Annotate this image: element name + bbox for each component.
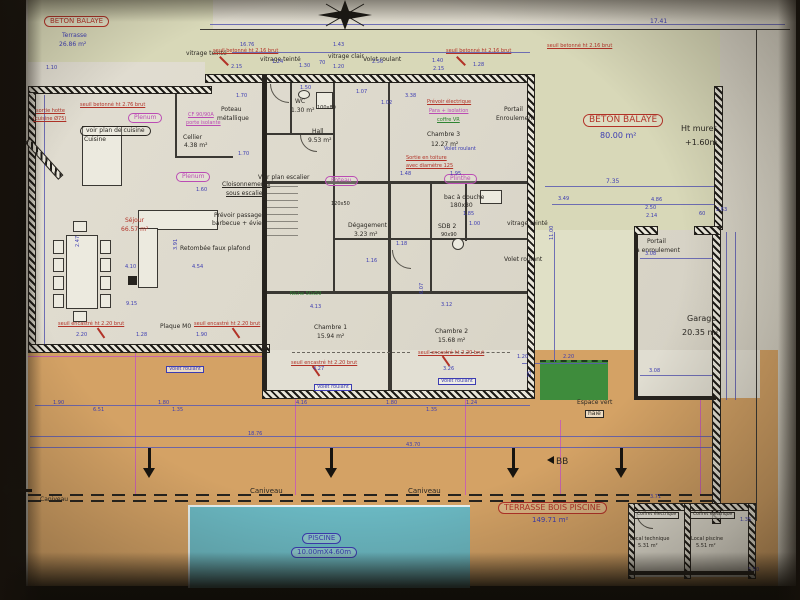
plan-label: 1.85 [463,212,474,217]
plan-label: seuil encastré ht 2.20 brut [58,322,124,327]
plan-label: 2.15 [231,65,242,70]
down-arrow [512,448,515,468]
plan-label: 9.53 m² [308,138,332,144]
plan-label: Prévoir électrique [427,100,471,105]
plan-label: 2.47 [76,236,81,247]
plan-label: seuil encastré ht 2.20 brut [194,322,260,327]
plan-label: Volet roulant [444,147,476,152]
plan-label: 100x80 [317,106,336,111]
plan-label: 2.20 [76,333,87,338]
plan-label: 1.18 [396,242,407,247]
plan-label: 6.51 [93,408,104,413]
plan-label: (cuisine Ø75) [33,117,66,122]
plan-label: 4.54 [192,265,203,270]
plan-label: bac à douche [444,195,484,201]
plan-label: Coffret électrique [634,512,679,519]
plan-label: 4.10 [125,265,136,270]
plan-label: 2.14 [646,214,657,219]
plan-label: 1.90 [53,401,64,406]
plan-label: 1.90 [196,333,207,338]
plan-label: haie [585,410,604,418]
plan-label: 4.38 m² [184,143,208,149]
plan-label: Volet roulant [166,366,204,373]
plan-label: Caniveau [40,497,68,503]
plan-label: 3.12 [441,303,452,308]
down-arrow [330,448,333,468]
terrasse-bois-title: TERRASSE BOIS PISCINE [498,502,607,514]
plan-label: 3.08 [645,252,656,257]
plan-label: Garage [687,315,716,323]
plan-label: 1.24 [272,60,283,65]
plan-label: Para + isolation [429,109,468,114]
plan-label: 1.28 [136,333,147,338]
plan-label: 90x90 [441,233,457,238]
plan-label: 3.08 [649,369,660,374]
plan-label: 1.80 [158,401,169,406]
plan-label: 60 [699,212,705,217]
plan-label: 2.15 [433,67,444,72]
plan-label: seuil betonné ht 2.16 brut [213,49,278,54]
plan-label: Poteau [325,176,358,186]
plan-label: 4.16 [296,401,307,406]
plan-label: Séjour [125,218,144,224]
plan-label: 3.23 m² [354,232,378,238]
plan-label: Portail [504,107,523,113]
plan-label: 120x50 [331,202,350,207]
plan-label: 1.24 [466,401,477,406]
piscine-title: PISCINE [302,533,341,544]
plan-label: 66.57 m² [121,227,148,233]
plan-label: Volet roulant [438,378,476,385]
plan-label: 1.70 [238,152,249,157]
plan-label: 17.41 [650,19,667,25]
plan-label: 4.86 [651,198,662,203]
plan-label: 7.35 [606,179,619,185]
plan-label: 1.16 [366,259,377,264]
plan-label: 5.31 m² [638,544,658,549]
plan-label: 3.91 [174,239,179,250]
plan-label: 2.50 [645,206,656,211]
plan-label: 2.20 [563,355,574,360]
plan-label: Plenum [176,172,210,182]
plan-label: 1.48 [400,172,411,177]
plan-label: 4.27 [313,367,324,372]
annotation-layer: BETON BALAYETerrasse26.86 m²BETON BALAYE… [0,0,800,600]
plan-label: sortie hotte [36,109,65,114]
plan-label: Niche 50x50 [290,292,321,297]
plan-label: Chambre 3 [427,132,460,138]
plan-label: 1.07 [356,90,367,95]
plan-label: Volet roulant [504,257,542,263]
plan-label: Hall [312,129,324,135]
plan-label: 2.56 [372,60,383,65]
left-arrow [8,489,32,492]
section-mark-bb: BB [556,458,568,467]
plan-label: 5.50 [748,568,759,573]
plan-label: Retombée faux plafond [180,246,250,252]
plan-label: 70 [319,61,325,66]
plan-label: à enroulement [636,248,680,254]
plan-label: 1.35 [426,408,437,413]
plan-label: 20.35 m² [682,329,718,337]
plan-label: 9.15 [126,302,137,307]
plan-label: vitrage teinté [507,221,548,227]
plan-label: seuil betonné ht 2.16 brut [446,49,511,54]
plan-label: 1.80 [386,401,397,406]
floor-plan-photo: BETON BALAYETerrasse26.86 m²BETON BALAYE… [0,0,800,600]
plan-label: 15.94 m² [317,334,344,340]
plan-label: Ht muret [681,125,717,133]
plan-label: Espace vert [577,400,612,406]
plan-label: Voir plan escalier [258,175,310,181]
plan-label: métallique [217,116,249,122]
plan-label: Plenum [128,113,162,123]
plan-label: WC [295,99,305,105]
plan-label: 1.28 [473,63,484,68]
plan-label: 16.76 [240,43,254,48]
plan-label: 43.70 [406,443,420,448]
plan-label: Terrasse [62,33,87,39]
plan-label: SDB 2 [438,224,456,230]
plan-label: Volet roulant [314,384,352,391]
plan-label: CF 90/90A [188,113,214,118]
plan-label: 55 [528,371,533,377]
plan-label: 4.13 [310,305,321,310]
plan-label: 1.95 [450,172,461,177]
plan-label: 1.40 [432,59,443,64]
plan-label: 1.10 [46,66,57,71]
plan-label: 6.07 [420,283,425,294]
plan-label: 1.35 [172,408,183,413]
plan-label: Caniveau [408,488,441,495]
plan-label: Cloisonnements [222,182,270,188]
plan-label: 3.38 [405,94,416,99]
down-arrow [620,448,623,468]
plan-label: 149.71 m² [532,517,568,524]
plan-label: seuil encastré ht 2.20 brut [418,351,484,356]
plan-label: Prévoir passage [214,213,262,219]
plan-label: Local piscine [691,537,723,542]
plan-label: 26.86 m² [59,42,86,48]
plan-label: seuil betonné ht 2.76 brut [80,103,145,108]
plan-label: avec diamètre 125 [406,164,453,169]
plan-label: 2.63 [716,208,727,213]
plan-label: 1.50 [300,86,311,91]
plan-label: 11.00 [550,226,555,240]
plan-label: 5.51 m² [696,544,716,549]
plan-label: seuil betonné ht 2.16 brut [547,44,612,49]
plan-label: seuil encastré ht 2.20 brut [291,361,357,366]
plan-label: 3.71 [650,495,661,500]
plan-label: Chambre 1 [314,325,347,331]
plan-label: Enroulement [496,116,534,122]
plan-label: vitrage clair [328,54,364,60]
plan-label: 15.68 m² [438,338,465,344]
plan-label: Caniveau [250,488,283,495]
plan-label: Poteau [221,107,242,113]
plan-label: Local technique [630,537,669,542]
beton-balaye-nw-title: BETON BALAYE [44,16,109,27]
plan-label: voir plan de cuisine [80,126,151,136]
plan-label: 1.70 [236,94,247,99]
plan-label: 1.30 m² [291,108,315,114]
plan-label: 10.00mX4.60m [291,547,357,558]
plan-label: 1.02 [381,101,392,106]
plan-label: 1.30 [299,64,310,69]
plan-label: 1.00 [469,222,480,227]
beton-balaye-e-title: BETON BALAYE [583,114,663,127]
plan-label: 1.35 [740,518,751,523]
plan-label: 1.43 [333,43,344,48]
plan-label: Cellier [183,135,202,141]
plan-label: 18.76 [248,432,262,437]
plan-label: +1.60m [685,139,717,147]
plan-label: 3.26 [443,367,454,372]
plan-label: 3.49 [558,197,569,202]
plan-label: Plaque M0 [160,324,191,330]
down-arrow [148,448,151,468]
plan-label: Dégagement [348,223,387,229]
plan-label: 180x80 [450,203,473,209]
plan-label: 1.20 [333,65,344,70]
plan-label: Sortie en toiture [406,156,447,161]
plan-label: Coffret électrique [690,512,735,519]
left-arrow [543,456,554,464]
plan-label: Cuisine [84,137,106,143]
plan-label: 80.00 m² [600,132,636,140]
plan-label: Chambre 2 [435,329,468,335]
plan-label: 1.60 [196,188,207,193]
plan-label: porte isolante [186,121,221,126]
plan-label: barbecue + évier [212,221,264,227]
plan-label: sous escalier [226,191,265,197]
plan-label: Portail [647,239,666,245]
plan-label: coffre VR [437,118,460,123]
plan-label: 1.20 [517,355,528,360]
